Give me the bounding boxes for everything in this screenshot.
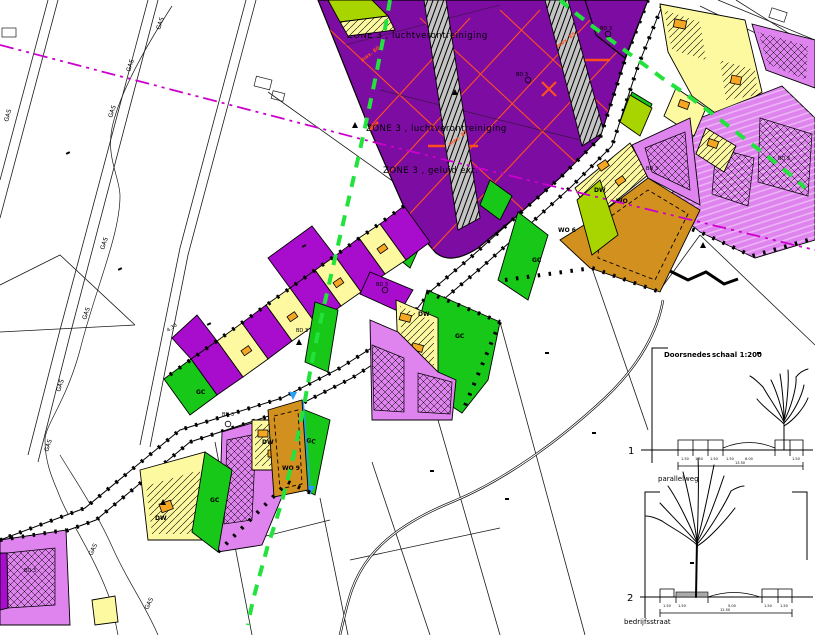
dim-value: 1.50 xyxy=(663,604,671,608)
cross-section-1: Doorsnedes schaal 1:200 1 1.50 1.50 1.50… xyxy=(628,348,813,483)
dim-value: 6.00 xyxy=(745,457,753,461)
parcel-code: BD 3 xyxy=(646,166,658,172)
section-1-number: 1 xyxy=(628,446,634,457)
dim-value: 1.50 xyxy=(726,457,734,461)
zoning-plan-map[interactable]: GAS GAS GAS GAS GAS GAS GAS GAS GAS GAS … xyxy=(0,0,815,635)
cluster-middle-2: GC DW BD 3 xyxy=(360,272,500,420)
sections-title: Doorsnedes xyxy=(664,351,711,359)
street-name-2: bedrijfsstraat xyxy=(624,618,671,626)
dim-value: 1.50 xyxy=(792,457,800,461)
parcel-code: BD 3 xyxy=(24,568,36,574)
parcel-code: DW xyxy=(155,515,167,522)
zone-label-3: ZONE 3 , geluid ext. xyxy=(383,166,478,176)
parcel-code: GC xyxy=(455,333,465,340)
gas-label: GAS xyxy=(87,542,99,557)
tree-drawing-1 xyxy=(750,369,808,450)
parcel-code: WO 6 xyxy=(558,227,576,234)
zone-label-2: ZONE 3 , luchtverontreiniging xyxy=(366,124,507,134)
dim-value: 1.50 xyxy=(681,457,689,461)
sections-scale: schaal 1:200 xyxy=(712,351,762,359)
parcel-code: BD 3 xyxy=(778,156,790,162)
parcel-code: GC xyxy=(196,389,206,396)
gas-label: GAS xyxy=(3,108,13,122)
parcel-code: GC xyxy=(210,497,220,504)
map-canvas: GAS GAS GAS GAS GAS GAS GAS GAS GAS GAS … xyxy=(0,0,815,635)
dim-value: 1.50 xyxy=(764,604,772,608)
parcel-code: DW xyxy=(594,187,606,194)
dim-total: 12.50 xyxy=(720,608,730,612)
dim-label: 4.30 xyxy=(166,323,179,334)
street-name-1: parallelweg xyxy=(658,475,699,483)
dim-total: 13.50 xyxy=(735,461,745,465)
parcel-code: DW xyxy=(262,439,274,446)
dim-value: 1.50 xyxy=(780,604,788,608)
section-2-number: 2 xyxy=(627,593,633,604)
parcel-code: BD 3 xyxy=(600,26,612,32)
parcel-code: BD 3 xyxy=(296,328,308,334)
bold-boundary-segment xyxy=(668,270,738,284)
gas-label: GAS xyxy=(55,378,66,392)
cluster-bottom-left: GC DW BD 3 xyxy=(0,452,232,625)
gas-label: GAS xyxy=(99,236,110,250)
gas-label: GAS xyxy=(155,16,166,30)
dim-value: 1.50 xyxy=(710,457,718,461)
dim-value: 1.50 xyxy=(695,457,703,461)
parcel-code: BD 3 xyxy=(222,412,234,418)
parcel-code: BD 3 xyxy=(516,72,528,78)
cross-section-2: 2 1.50 1.50 5.00 1.50 1.50 12.50 bedrijf… xyxy=(624,458,813,626)
dim-value: 1.50 xyxy=(678,604,686,608)
parcel-code: DW xyxy=(418,311,430,318)
parcel-code: GC xyxy=(532,257,542,264)
gas-label: GAS xyxy=(143,596,155,611)
